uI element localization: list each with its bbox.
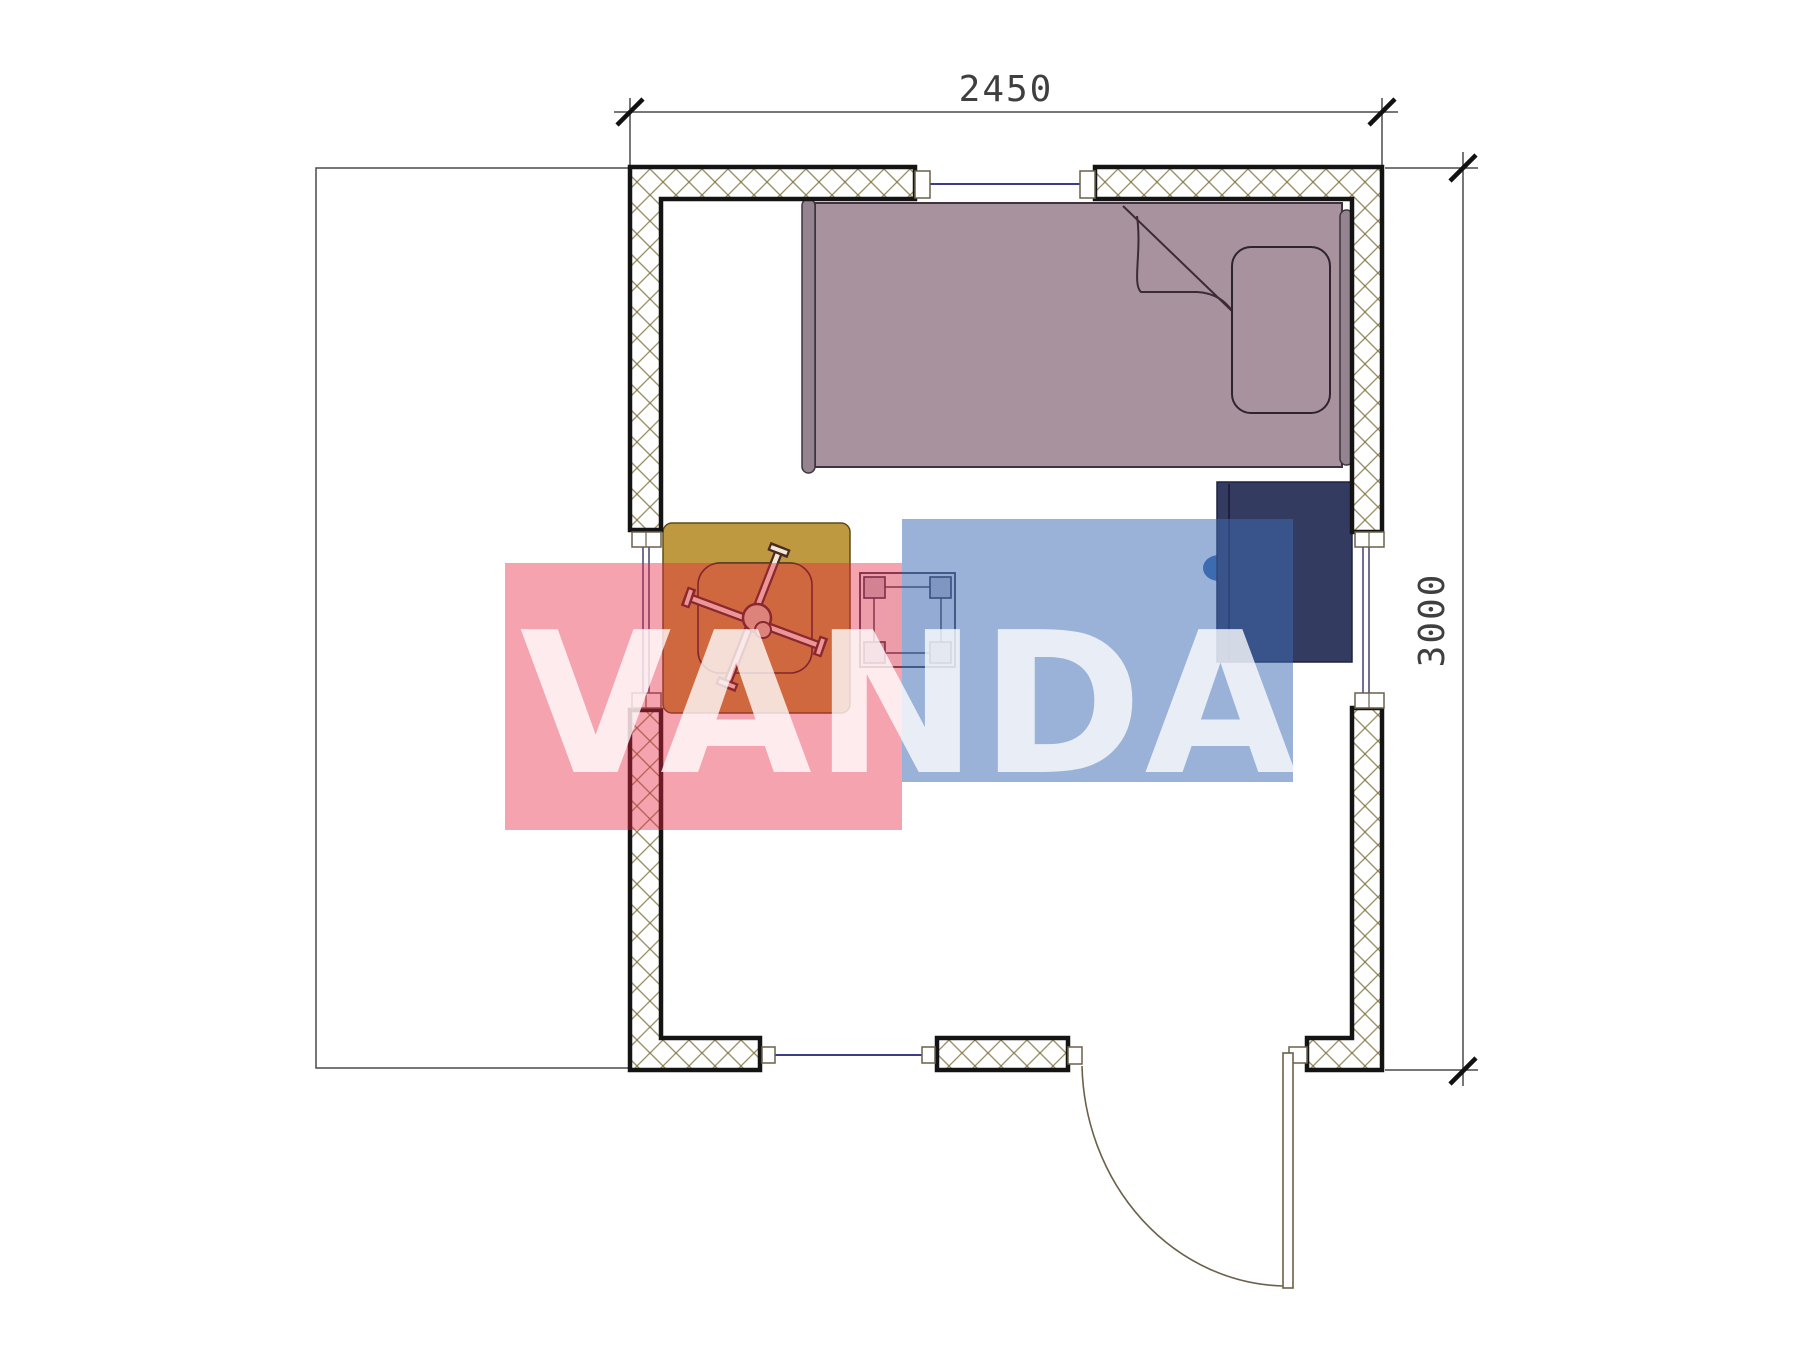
floor-plan: 2450 3000 <box>0 0 1800 1350</box>
door-leaf <box>1283 1053 1293 1288</box>
door <box>1068 1047 1307 1288</box>
bed <box>802 199 1353 473</box>
watermark: VANDA <box>505 519 1298 830</box>
window-sill-block <box>915 171 930 198</box>
window-sill-block <box>762 1047 775 1063</box>
window-top <box>915 171 1095 198</box>
wall-bottom-right <box>1307 708 1382 1070</box>
dimension-width: 2450 <box>614 69 1398 166</box>
window-bottom <box>762 1047 935 1063</box>
watermark-text: VANDA <box>520 591 1299 819</box>
pillow <box>1232 247 1330 413</box>
height-dimension-label: 3000 <box>1412 573 1453 668</box>
window-sill-block <box>922 1047 935 1063</box>
window-sill-block <box>1080 171 1095 198</box>
dimension-height: 3000 <box>1385 152 1478 1086</box>
width-dimension-label: 2450 <box>959 69 1054 110</box>
wall-bottom-pier <box>937 1038 1068 1070</box>
bed-headboard <box>802 199 815 473</box>
door-swing-arc <box>1082 1066 1283 1286</box>
door-jamb <box>1068 1047 1082 1064</box>
window-right <box>1355 532 1384 708</box>
